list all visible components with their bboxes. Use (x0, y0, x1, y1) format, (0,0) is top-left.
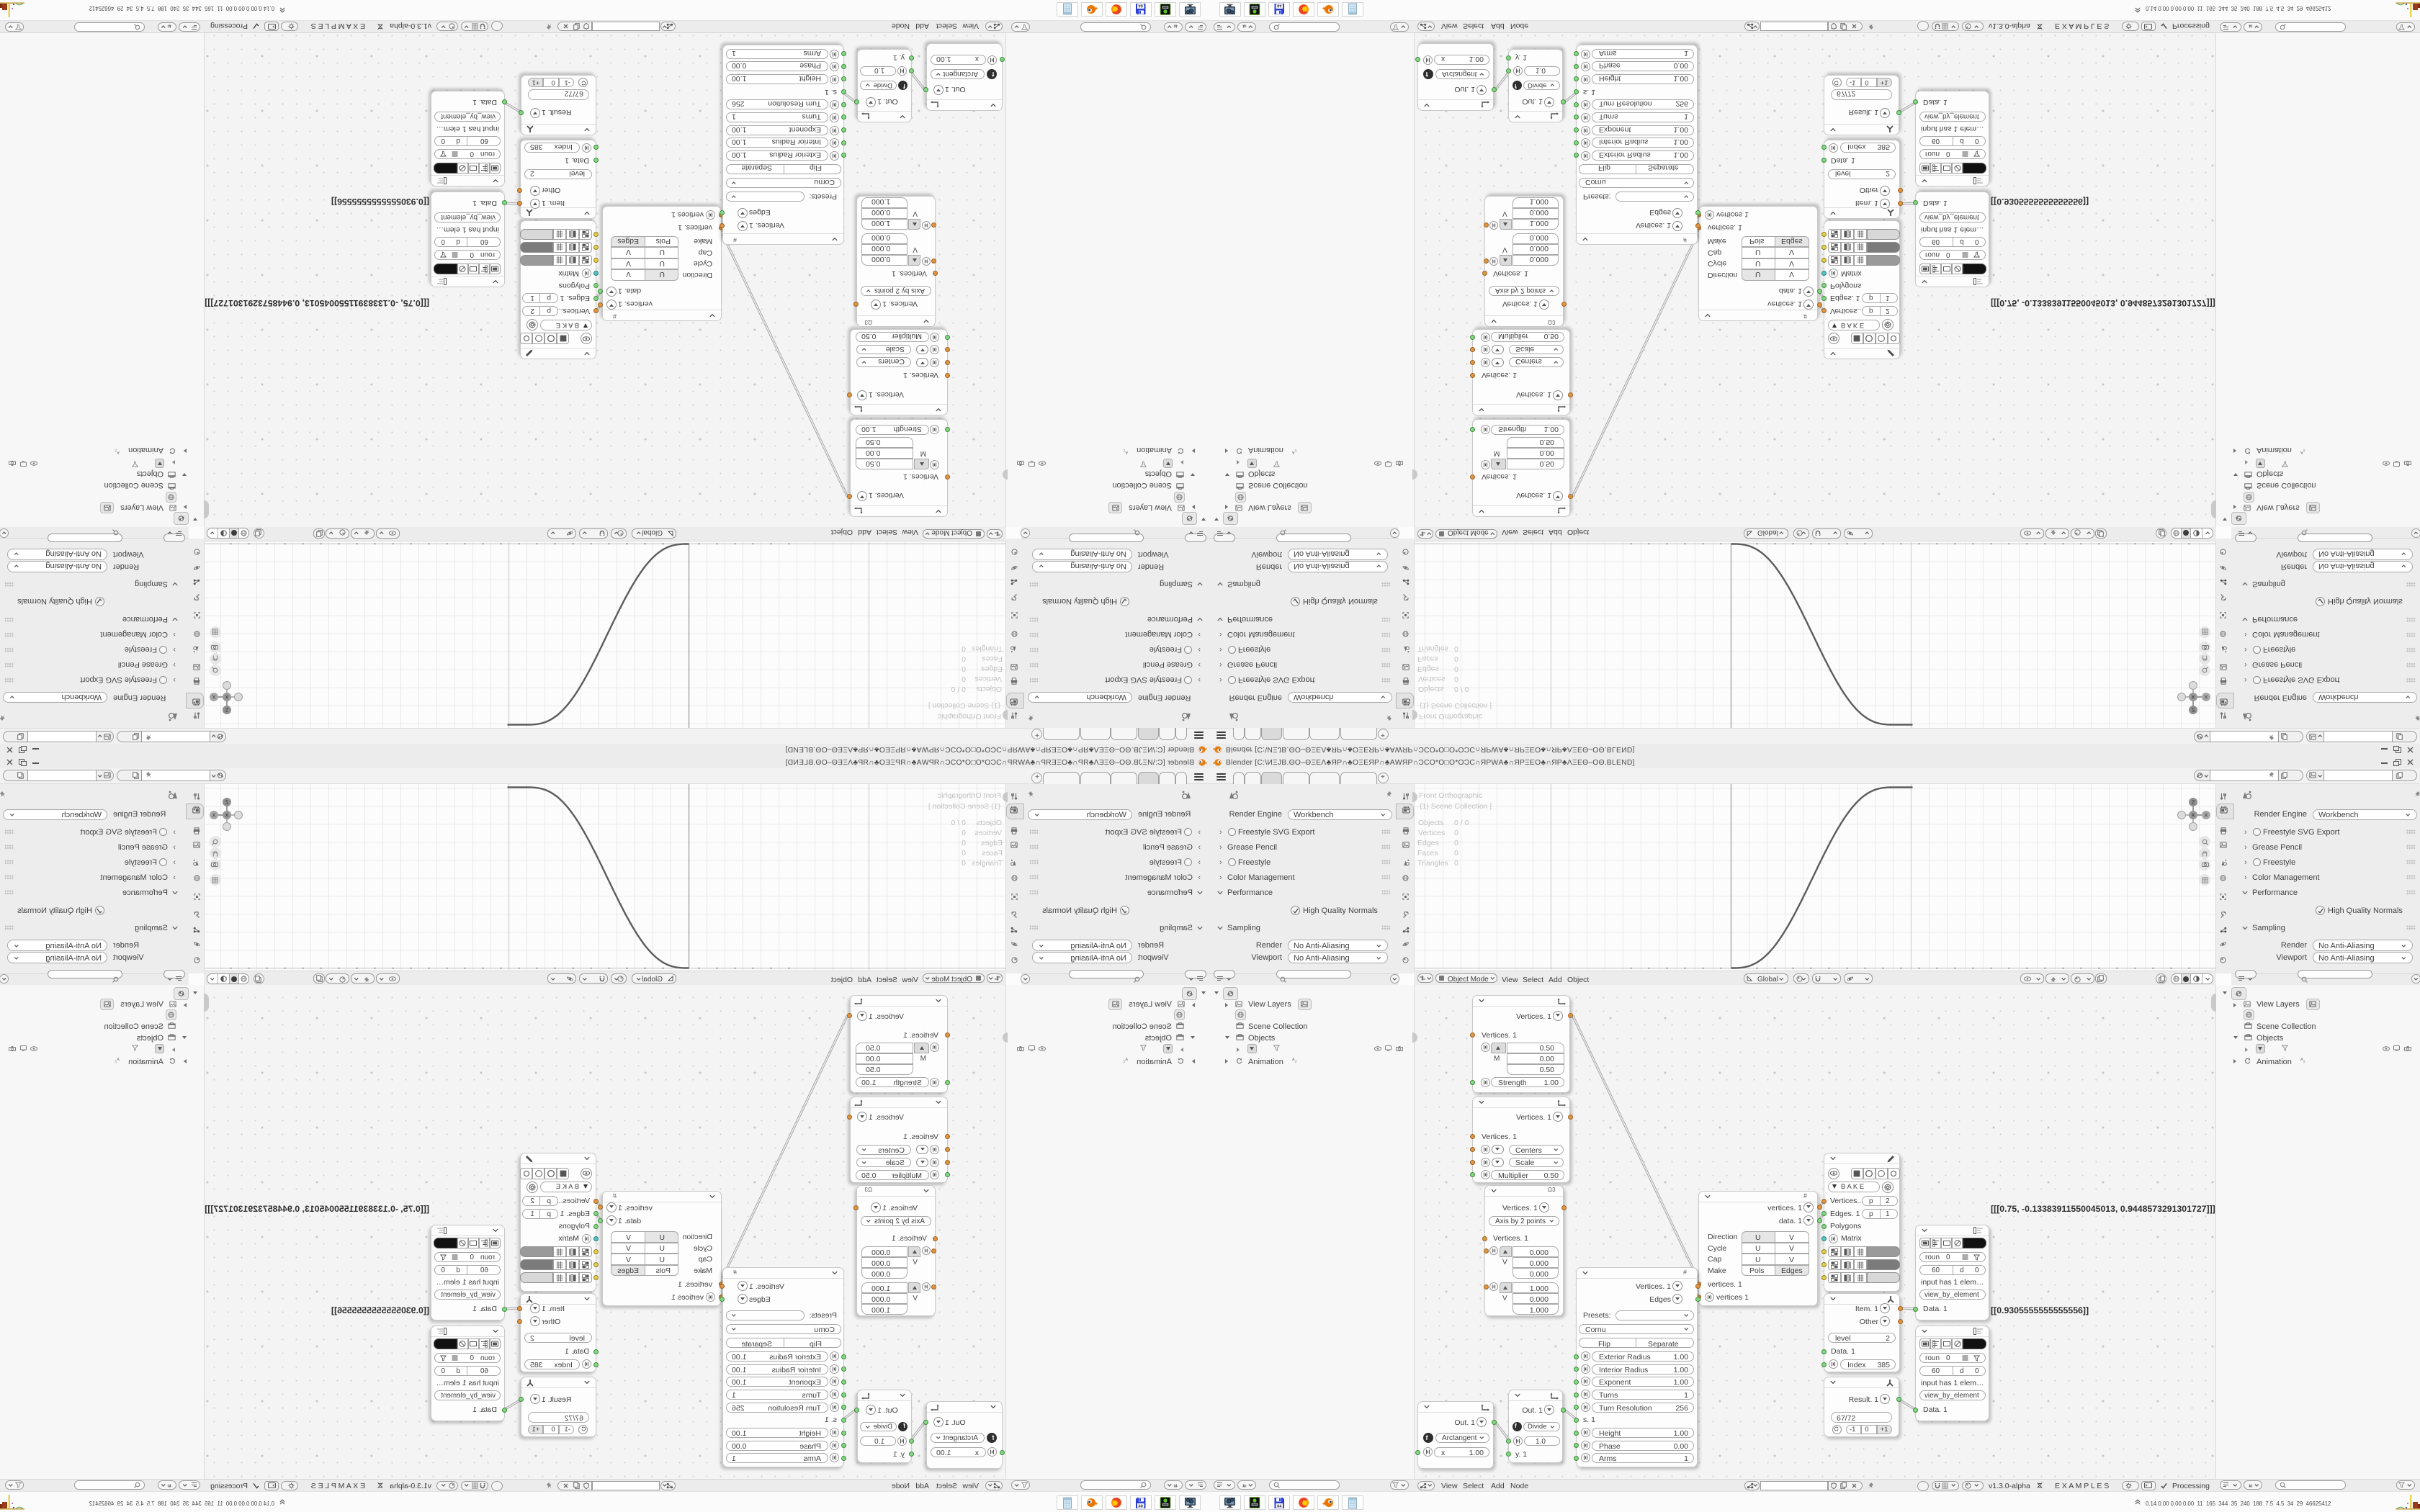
svg-text:X: X (225, 694, 228, 699)
svg-text:64: 64 (1138, 1504, 1143, 1508)
svg-text:X: X (2205, 814, 2208, 819)
svg-text:X: X (212, 694, 215, 699)
svg-text:X: X (2205, 694, 2208, 699)
svg-text:X: X (225, 814, 228, 819)
svg-text:Z: Z (225, 801, 228, 806)
svg-text:X: X (2192, 814, 2195, 819)
svg-text:Z: Z (2192, 801, 2195, 806)
svg-text:64: 64 (1277, 4, 1282, 8)
svg-text:64: 64 (1138, 4, 1143, 8)
svg-text:Z: Z (2192, 707, 2195, 712)
svg-text:X: X (2192, 694, 2195, 699)
svg-text:Z: Z (225, 707, 228, 712)
svg-text:X: X (212, 814, 215, 819)
svg-text:64: 64 (1277, 1504, 1282, 1508)
